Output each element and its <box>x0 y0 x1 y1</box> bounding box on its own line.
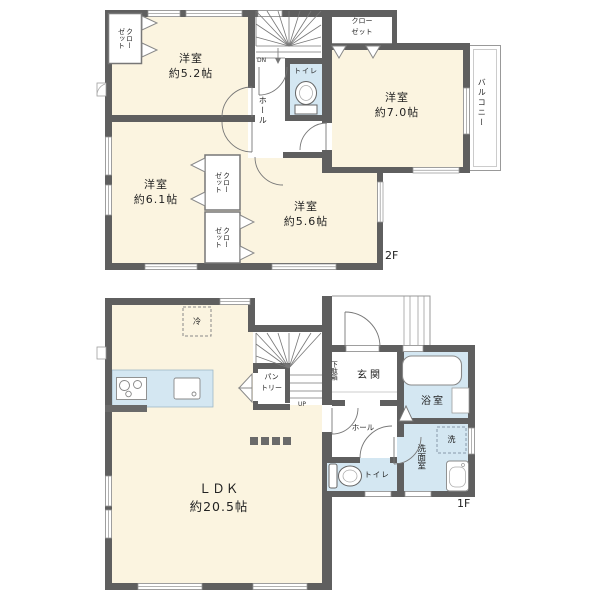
pantry-label: パン トリー <box>255 372 288 393</box>
closet-label-text: クロー ゼット <box>214 172 230 193</box>
closet-mid-lower-label: クロー ゼット <box>206 213 239 262</box>
toilet-icon-1f <box>329 464 362 488</box>
stairs-up-label: UP <box>298 401 306 409</box>
kitchen-sink-icon <box>174 378 200 399</box>
bedroom-56-label: 洋室 約5.6帖 <box>262 199 350 230</box>
porch-outline <box>332 296 430 345</box>
washroom-label: 洗面室 <box>415 444 425 470</box>
toilet-1f-label: トイレ <box>359 470 395 481</box>
refrigerator-label: 冷 <box>183 307 211 336</box>
hall-1f-label: ホール <box>345 423 381 434</box>
stairs-2f <box>256 11 321 59</box>
floorplan-canvas <box>0 0 600 600</box>
bathtub-icon <box>403 356 462 385</box>
washbasin-icon <box>447 461 469 491</box>
hall-2f-label: ホール <box>258 96 267 126</box>
bedroom-61-label: 洋室 約6.1帖 <box>112 177 200 208</box>
floor-2f-label: 2F <box>385 248 398 263</box>
counter-stub-wall <box>105 405 147 412</box>
floorplan: クロー ゼット 洋室 約5.2帖 クロー ゼット 洋室 約7.0帖 バルコニー … <box>0 0 600 600</box>
balcony-label: バルコニー <box>477 78 486 128</box>
closet-mid-upper-label: クロー ゼット <box>206 156 239 209</box>
bedroom-52-label: 洋室 約5.2帖 <box>146 51 236 82</box>
entrance-label: 玄関 <box>347 369 393 383</box>
bedroom-70-label: 洋室 約7.0帖 <box>352 90 442 121</box>
toilet-2f-label: トイレ <box>290 67 322 77</box>
stairs-2f-arrowhead <box>275 58 281 64</box>
closet-top-left-label: クロー ゼット <box>110 15 141 61</box>
shoe-cabinet-label: 下駄箱 <box>329 361 336 381</box>
closet-label-text: クロー ゼット <box>214 227 230 248</box>
closet-top-right-label: クロー ゼット <box>332 16 392 38</box>
washing-machine-label: 洗 <box>437 427 466 453</box>
ldk-label: ＬＤＫ 約20.5帖 <box>157 480 281 515</box>
stove-icon <box>117 378 147 400</box>
closet-label-text: クロー ゼット <box>117 28 133 49</box>
floor-1f-label: 1F <box>457 496 470 511</box>
stairs-down-label: DN <box>257 57 266 65</box>
bath-label: 浴室 <box>411 395 455 409</box>
toilet-icon-2f <box>295 82 317 115</box>
